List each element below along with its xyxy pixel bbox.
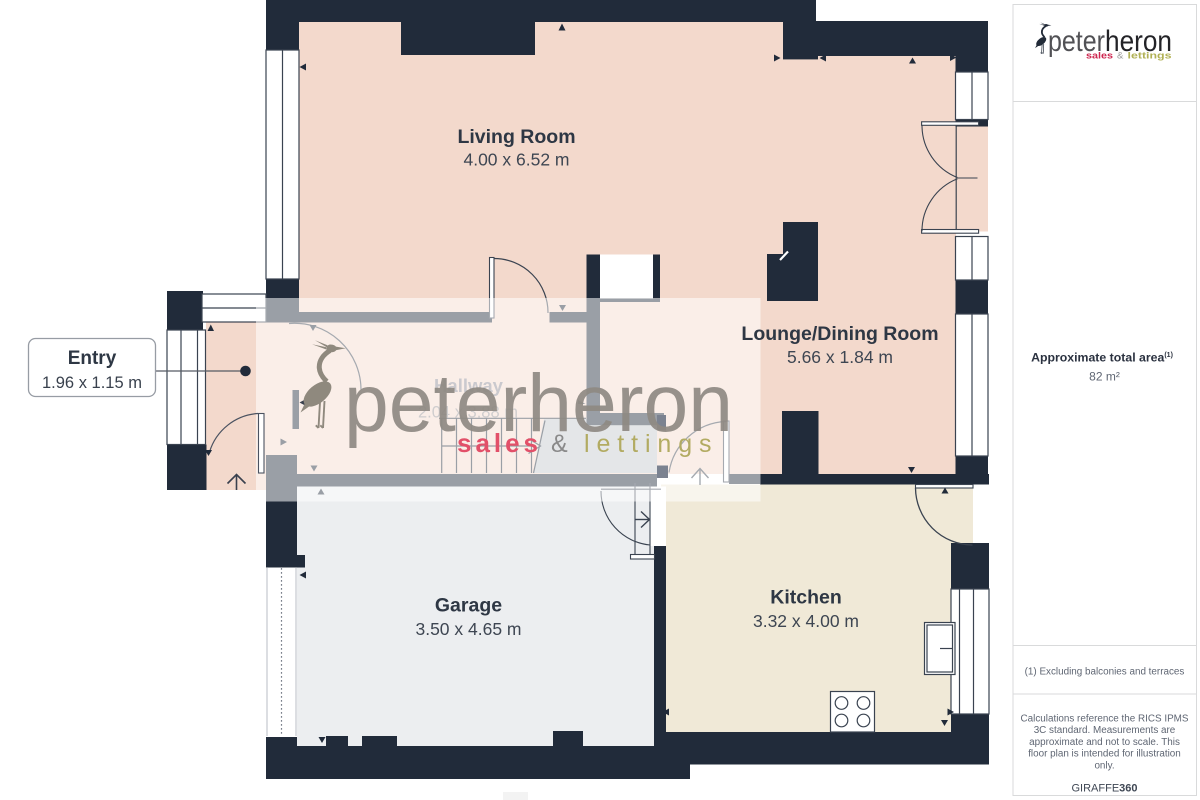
svg-text:(1) Excluding balconies and te: (1) Excluding balconies and terraces xyxy=(1025,667,1185,678)
svg-text:peterheron: peterheron xyxy=(344,358,733,449)
svg-text:sales: sales xyxy=(457,428,538,458)
svg-text:sales: sales xyxy=(1086,51,1113,62)
svg-text:approximate and not to scale.: approximate and not to scale. This xyxy=(1029,737,1180,748)
svg-text:Lounge/Dining Room: Lounge/Dining Room xyxy=(741,323,938,345)
svg-text:1.96 x 1.15 m: 1.96 x 1.15 m xyxy=(42,374,142,392)
svg-text:4.00 x 6.52 m: 4.00 x 6.52 m xyxy=(463,150,569,170)
svg-text:only.: only. xyxy=(1094,760,1114,771)
svg-text:Living Room: Living Room xyxy=(457,126,575,148)
svg-text:3.50 x 4.65 m: 3.50 x 4.65 m xyxy=(415,619,521,639)
svg-text:Garage: Garage xyxy=(435,595,502,617)
svg-text:Kitchen: Kitchen xyxy=(770,587,842,609)
svg-text:Entry: Entry xyxy=(68,348,117,369)
svg-text:82 m²: 82 m² xyxy=(1089,370,1120,384)
svg-text:5.66 x 1.84 m: 5.66 x 1.84 m xyxy=(787,347,893,367)
svg-text:GIRAFFE360: GIRAFFE360 xyxy=(1071,783,1137,795)
svg-text:Calculations reference the RIC: Calculations reference the RICS IPMS xyxy=(1021,714,1189,725)
svg-text:&: & xyxy=(1117,51,1124,62)
svg-text:lettings: lettings xyxy=(1128,51,1172,62)
svg-text:3.32 x 4.00 m: 3.32 x 4.00 m xyxy=(753,611,859,631)
svg-text:3C standard. Measurements are: 3C standard. Measurements are xyxy=(1034,725,1176,736)
svg-text:&: & xyxy=(551,430,568,458)
svg-text:floor plan is intended for ill: floor plan is intended for illustration xyxy=(1028,749,1181,760)
svg-text:Approximate total area(1): Approximate total area(1) xyxy=(1031,351,1173,365)
